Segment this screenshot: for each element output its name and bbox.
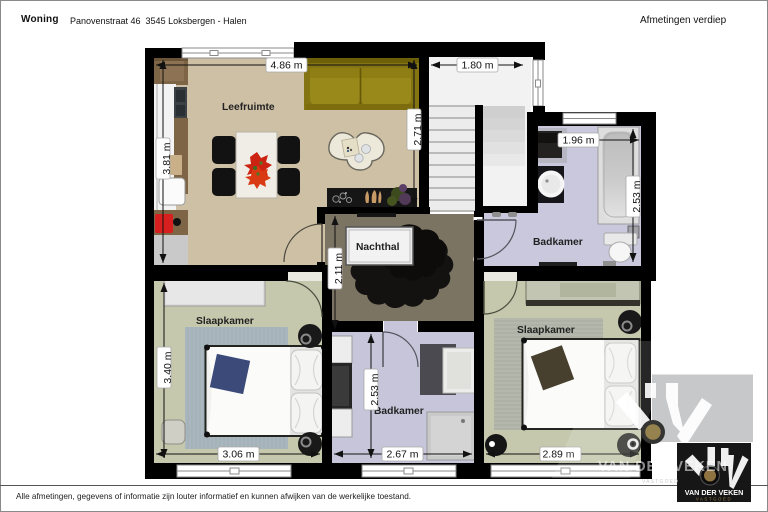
svg-text:Badkamer: Badkamer — [533, 237, 583, 248]
svg-text:3.06 m: 3.06 m — [222, 449, 254, 461]
svg-text:1.80 m: 1.80 m — [461, 60, 493, 72]
svg-text:4.86 m: 4.86 m — [270, 60, 302, 72]
svg-text:2.53 m: 2.53 m — [631, 180, 643, 212]
svg-text:Nachthal: Nachthal — [356, 242, 400, 253]
svg-text:Slaapkamer: Slaapkamer — [196, 316, 254, 327]
svg-text:2.71 m: 2.71 m — [412, 113, 424, 145]
svg-text:2.67 m: 2.67 m — [386, 449, 418, 461]
svg-text:VAN DER VEKEN: VAN DER VEKEN — [598, 459, 728, 475]
svg-text:1.96 m: 1.96 m — [562, 135, 594, 147]
svg-text:VASTGOED: VASTGOED — [696, 497, 732, 502]
svg-text:2.11 m: 2.11 m — [333, 253, 345, 285]
svg-text:Leefruimte: Leefruimte — [222, 102, 275, 113]
svg-text:Slaapkamer: Slaapkamer — [517, 325, 575, 336]
svg-text:VASTGOED: VASTGOED — [642, 479, 679, 485]
svg-text:Badkamer: Badkamer — [374, 406, 424, 417]
svg-text:3.40 m: 3.40 m — [162, 351, 174, 383]
svg-text:3.81 m: 3.81 m — [161, 142, 173, 174]
svg-text:2.53 m: 2.53 m — [369, 373, 381, 405]
